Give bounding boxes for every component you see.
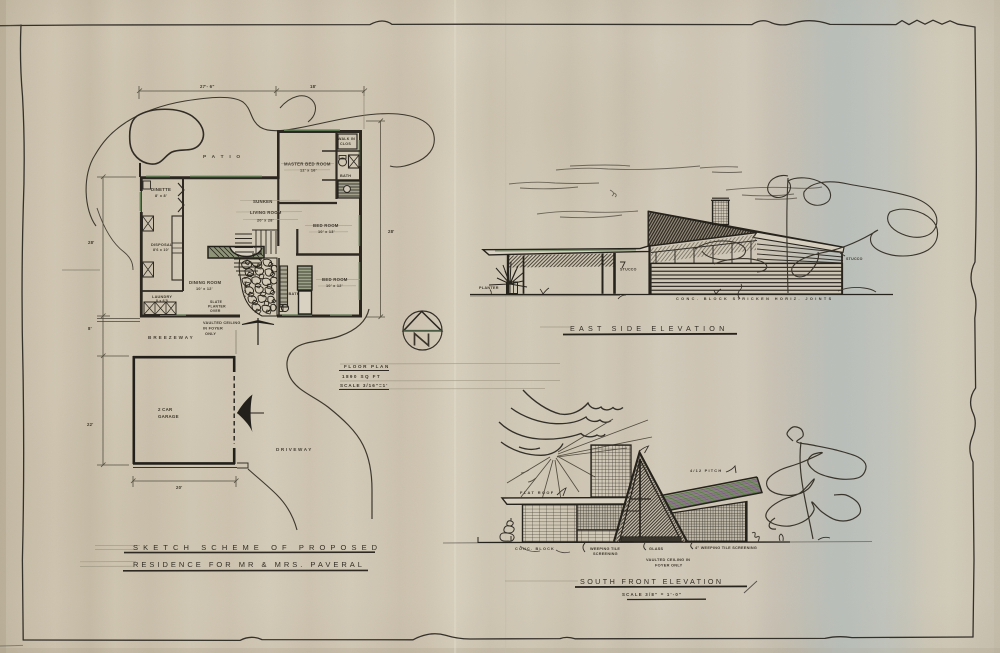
svg-text:20' x 28': 20' x 28' [257, 219, 274, 223]
svg-text:4/12 PITCH: 4/12 PITCH [690, 468, 722, 473]
svg-text:10' x 13': 10' x 13' [318, 230, 335, 234]
svg-text:STUCCO: STUCCO [846, 257, 863, 261]
svg-text:BATH: BATH [340, 174, 351, 178]
svg-text:PLANTER: PLANTER [479, 286, 499, 290]
svg-text:2 CAR: 2 CAR [158, 407, 173, 412]
svg-text:28': 28' [388, 229, 395, 234]
svg-text:8': 8' [88, 326, 92, 331]
svg-text:SOUTH FRONT ELEVATION: SOUTH FRONT ELEVATION [580, 577, 723, 586]
svg-text:22': 22' [87, 422, 94, 427]
svg-text:27'- 6": 27'- 6" [200, 84, 215, 89]
svg-text:RESIDENCE FOR MR & MRS. PAV: RESIDENCE FOR MR & MRS. PAVERAL [133, 560, 365, 569]
svg-text:CONC. BLOCK: CONC. BLOCK [515, 547, 555, 551]
svg-text:12' x 16': 12' x 16' [300, 169, 317, 173]
svg-text:VAULTED CEILING IN: VAULTED CEILING IN [646, 557, 690, 562]
svg-text:CLOS: CLOS [340, 142, 351, 146]
svg-text:10' x 12': 10' x 12' [326, 284, 343, 288]
svg-text:LIVING ROOM: LIVING ROOM [250, 210, 282, 215]
svg-text:SKETCH SCHEME OF PROPOSED: SKETCH SCHEME OF PROPOSED [133, 543, 382, 552]
svg-text:SCREENING: SCREENING [593, 552, 618, 556]
svg-text:GARAGE: GARAGE [158, 414, 179, 419]
svg-text:IN FOYER: IN FOYER [203, 327, 223, 331]
svg-text:FOYER ONLY: FOYER ONLY [655, 563, 683, 568]
svg-text:DRIVEWAY: DRIVEWAY [276, 447, 313, 452]
svg-text:DINING ROOM: DINING ROOM [189, 280, 222, 285]
svg-text:8' x 8': 8' x 8' [155, 194, 167, 198]
svg-text:BED ROOM: BED ROOM [322, 277, 348, 282]
svg-text:10' x 12': 10' x 12' [196, 287, 213, 291]
svg-text:FLAT ROOF: FLAT ROOF [520, 490, 555, 495]
svg-text:SCALE 3/8" = 1'-0": SCALE 3/8" = 1'-0" [622, 592, 682, 597]
svg-text:4" WEEPING TILE SCREENING: 4" WEEPING TILE SCREENING [695, 546, 757, 550]
svg-text:GLASS: GLASS [649, 547, 664, 551]
svg-text:ONLY: ONLY [205, 332, 216, 336]
svg-text:18': 18' [310, 84, 317, 89]
svg-text:SCALE 3/16"=1': SCALE 3/16"=1' [340, 383, 388, 388]
svg-text:FOYER: FOYER [243, 275, 248, 298]
svg-text:CONC. BLOCK STRICKEN HORIZ: CONC. BLOCK STRICKEN HORIZ. JOINTS [676, 297, 834, 301]
svg-text:PLANTER: PLANTER [208, 305, 226, 309]
svg-text:MASTER BED ROOM: MASTER BED ROOM [284, 162, 331, 167]
svg-text:OVER: OVER [210, 309, 221, 313]
svg-text:WEEPING TILE: WEEPING TILE [590, 547, 620, 551]
svg-text:20': 20' [176, 485, 183, 490]
svg-text:WALK IN: WALK IN [338, 137, 355, 141]
svg-text:P A T I O: P A T I O [203, 154, 242, 160]
svg-text:SUNKEN: SUNKEN [253, 199, 273, 204]
svg-text:BREEZEWAY: BREEZEWAY [148, 335, 195, 340]
svg-text:BED ROOM: BED ROOM [313, 223, 339, 228]
svg-text:FLOOR PLAN: FLOOR PLAN [344, 364, 390, 369]
svg-text:8'6 x 10': 8'6 x 10' [153, 248, 169, 252]
svg-text:VAULTED CEILING: VAULTED CEILING [203, 321, 241, 325]
svg-text:EAST SIDE ELEVATION: EAST SIDE ELEVATION [570, 324, 729, 333]
svg-text:STUCCO: STUCCO [620, 268, 637, 272]
svg-text:DINETTE: DINETTE [151, 187, 171, 192]
svg-text:DISPOSAL: DISPOSAL [151, 243, 173, 247]
svg-text:SLATE: SLATE [210, 300, 223, 304]
svg-text:1890 SQ FT: 1890 SQ FT [342, 374, 381, 379]
svg-text:28': 28' [88, 240, 95, 245]
